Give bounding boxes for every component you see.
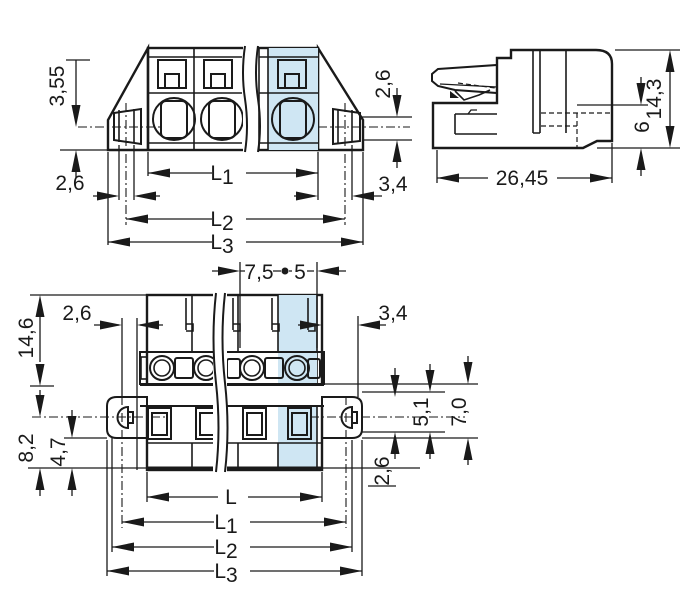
front-dim-L1: L1 [148, 162, 318, 189]
dim-355-label: 3,55 [46, 66, 69, 107]
bottom-view: 7,5 5 2,6 3,4 14,6 8,2 [15, 261, 478, 587]
dim-26-bottomright-label: 2,6 [371, 456, 394, 485]
side-latch-arm [432, 65, 497, 93]
side-view: 14,3 6 26,45 [432, 50, 680, 190]
bottom-dim-82: 8,2 [15, 390, 45, 496]
dim-26-left-label: 2,6 [55, 172, 84, 195]
bottom-L1-sub: 1 [226, 515, 238, 538]
front-dim-26-left: 2,6 [55, 150, 84, 195]
front-L1-sub: 1 [222, 166, 234, 189]
bottom-dim-L3: L3 [107, 560, 362, 587]
svg-text:L2: L2 [214, 536, 237, 563]
dim-82-label: 8,2 [15, 433, 38, 462]
bottom-dim-146: 14,6 [15, 295, 45, 386]
dim-75-label: 7,5 [244, 261, 273, 284]
bottom-dim-L: L [147, 486, 322, 509]
front-dim-34-label: 3,4 [378, 173, 408, 196]
svg-text:L3: L3 [210, 231, 233, 258]
dim-34-label: 3,4 [378, 302, 408, 325]
bottom-dim-47: 4,7 [47, 410, 77, 496]
front-dim-L2: L2 [126, 208, 345, 235]
bottom-dim-70: 7,0 [448, 356, 473, 465]
front-dim-L3: L3 [108, 231, 363, 258]
front-L2-sub: 2 [222, 212, 234, 235]
bottom-L3-sub: 3 [226, 564, 238, 587]
dim-47-label: 4,7 [47, 437, 70, 466]
dim-143-label: 14,3 [643, 79, 666, 120]
bottom-dim-L2: L2 [112, 536, 352, 563]
front-L1-label: L [210, 162, 222, 185]
front-L3-label: L [210, 231, 222, 254]
dim-26-topleft-label: 2,6 [62, 302, 91, 325]
bottom-dim-L1: L1 [122, 511, 346, 538]
side-dim-2645: 26,45 [437, 167, 612, 190]
dim-70-label: 7,0 [448, 397, 471, 426]
bottom-dim-51: 5,1 [410, 364, 435, 459]
svg-text:L1: L1 [214, 511, 237, 538]
bottom-L-label: L [225, 486, 237, 509]
dim-146-label: 14,6 [15, 318, 38, 359]
front-dim-355: 3,55 [46, 60, 81, 127]
bottom-white-band [140, 385, 324, 406]
bottom-L2-sub: 2 [226, 540, 238, 563]
technical-drawing-page: 3,55 2,6 2,6 L1 3,4 L2 [0, 0, 697, 591]
bottom-L2-label: L [214, 536, 226, 559]
dim-5-label: 5 [294, 261, 306, 284]
dim-26-right-label: 2,6 [372, 69, 395, 98]
front-L2-label: L [210, 208, 222, 231]
dim-2645-label: 26,45 [496, 167, 549, 190]
dim-6-label: 6 [631, 121, 654, 133]
front-L3-sub: 3 [222, 235, 234, 258]
dim-51-label: 5,1 [410, 397, 433, 426]
svg-text:L1: L1 [210, 162, 233, 189]
svg-text:L3: L3 [214, 560, 237, 587]
front-small-arrows: 3,4 [93, 173, 408, 201]
front-dim-26-right: 2,6 [372, 69, 402, 168]
bottom-L1-label: L [214, 511, 226, 534]
connector-drawing: 3,55 2,6 2,6 L1 3,4 L2 [0, 0, 697, 591]
bottom-dim-75-5: 7,5 5 [212, 261, 346, 284]
front-right-end [318, 48, 363, 150]
bottom-L3-label: L [214, 560, 226, 583]
front-view: 3,55 2,6 2,6 L1 3,4 L2 [46, 45, 412, 258]
